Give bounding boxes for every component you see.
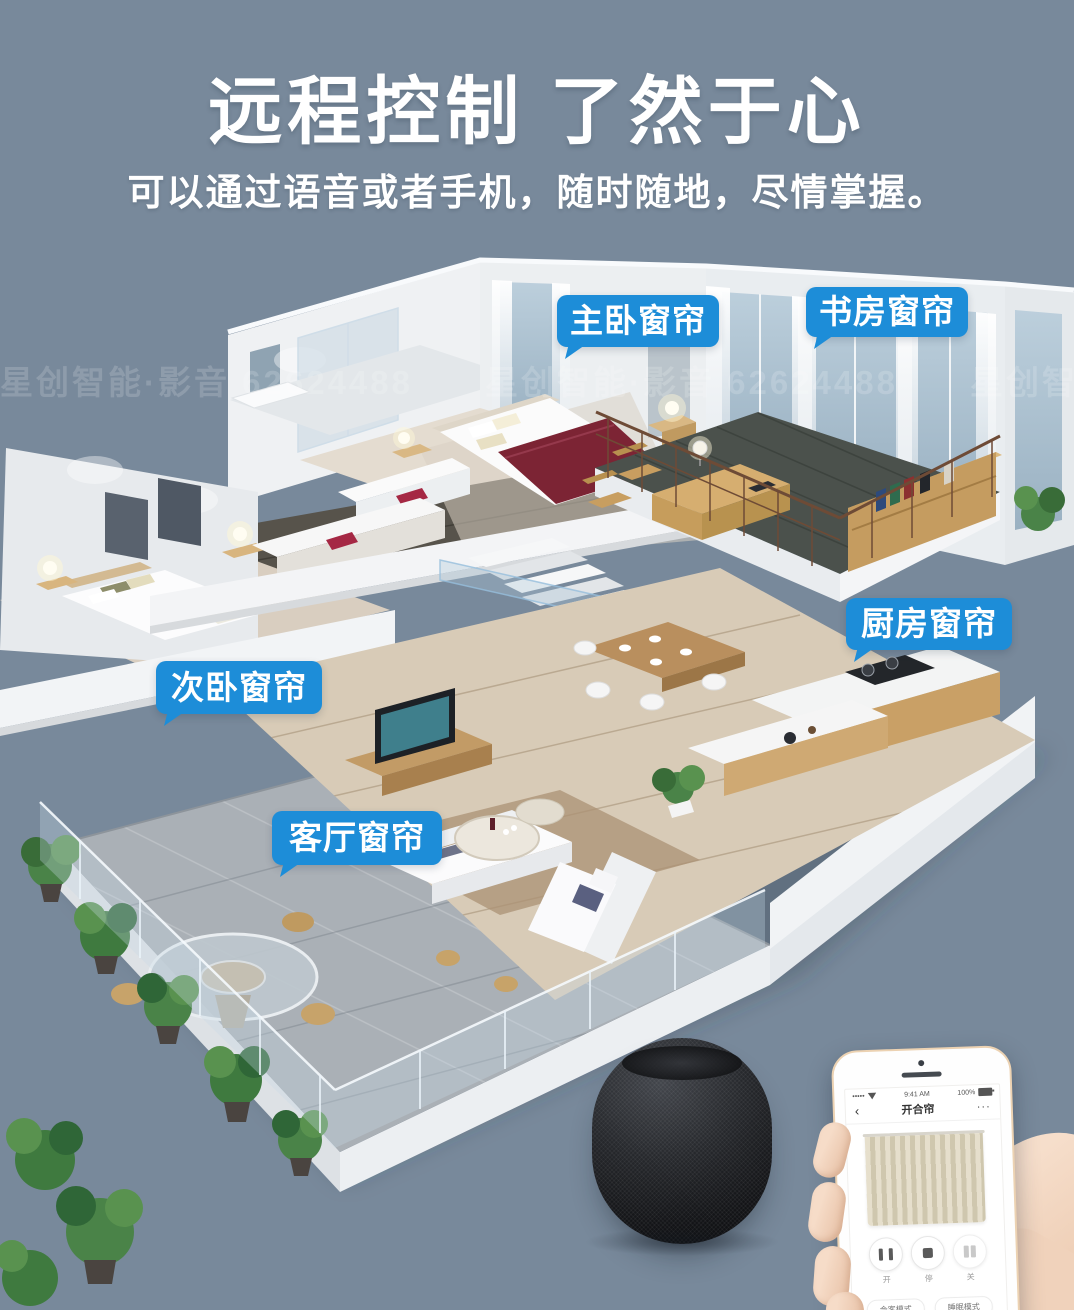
close-label: 关 <box>967 1271 975 1282</box>
callout-label: 厨房窗帘 <box>861 605 997 642</box>
callout-label: 次卧窗帘 <box>171 669 307 706</box>
watermark-text: 星创智能·影音 62624488 星创智能·影音 62624488 星创智能·影… <box>0 356 1074 400</box>
phone-screen: ••••• 9:41 AM 100% ‹ 开合帘 ··· <box>844 1083 1008 1310</box>
battery-icon <box>978 1088 992 1096</box>
callout-study-curtain[interactable]: 书房窗帘 <box>806 287 968 337</box>
callout-living-room-curtain[interactable]: 客厅窗帘 <box>272 811 442 865</box>
curtain-controls: 开 停 关 <box>864 1234 992 1286</box>
app-nav-bar: ‹ 开合帘 ··· <box>846 1096 1001 1124</box>
mode-button-sleep[interactable]: 睡眠模式 <box>934 1296 993 1310</box>
pause-button[interactable] <box>910 1235 945 1270</box>
phone-earpiece <box>902 1071 942 1077</box>
curtain-preview <box>863 1130 988 1226</box>
scene-modes: 会客模式 睡眠模式 起床模式 观影模式 <box>866 1296 994 1310</box>
app-title: 开合帘 <box>901 1101 935 1118</box>
pause-icon <box>923 1248 933 1258</box>
open-button[interactable] <box>868 1237 903 1272</box>
menu-button[interactable]: ··· <box>977 1103 991 1111</box>
open-icon <box>879 1248 893 1260</box>
callout-master-bedroom-curtain[interactable]: 主卧窗帘 <box>557 295 719 347</box>
callout-label: 主卧窗帘 <box>570 302 706 339</box>
open-label: 开 <box>883 1274 891 1285</box>
smart-speaker <box>592 1038 772 1244</box>
pause-label: 停 <box>925 1273 933 1284</box>
callout-second-bedroom-curtain[interactable]: 次卧窗帘 <box>156 661 322 714</box>
carrier-dots: ••••• <box>852 1093 865 1100</box>
close-button[interactable] <box>952 1234 987 1269</box>
wifi-icon <box>867 1092 876 1099</box>
battery-percent: 100% <box>957 1089 975 1097</box>
second-bedroom <box>0 448 268 668</box>
phone-camera-dot <box>918 1060 924 1066</box>
phone: ••••• 9:41 AM 100% ‹ 开合帘 ··· <box>831 1045 1021 1310</box>
callout-label: 客厅窗帘 <box>289 819 425 856</box>
back-button[interactable]: ‹ <box>855 1105 860 1117</box>
mode-button-guest[interactable]: 会客模式 <box>866 1298 925 1310</box>
callout-label: 书房窗帘 <box>819 293 955 330</box>
curtain-panel <box>865 1133 986 1226</box>
poster-page: 远程控制 了然于心 可以通过语音或者手机，随时随地，尽情掌握。 <box>0 0 1074 1310</box>
status-time: 9:41 AM <box>904 1090 930 1098</box>
callout-kitchen-curtain[interactable]: 厨房窗帘 <box>846 598 1012 650</box>
close-icon <box>964 1245 976 1257</box>
